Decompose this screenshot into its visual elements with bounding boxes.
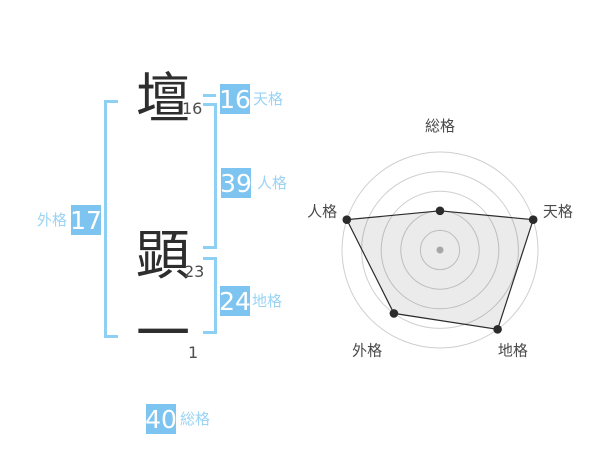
soukaku-score-box: 40: [146, 404, 176, 434]
chikaku-score-label: 地格: [252, 294, 282, 309]
chikaku-score-box: 24: [220, 286, 250, 316]
radar-axis-label-4: 人格: [307, 203, 337, 221]
name-char-3: 一: [134, 307, 192, 361]
radar-polygon: [347, 211, 533, 329]
tenkaku-score-box: 16: [220, 84, 250, 114]
radar-point-1: [529, 215, 538, 224]
gaikaku-bracket: [104, 100, 118, 338]
soukaku-score-label: 総格: [180, 412, 210, 427]
radar-point-0: [436, 207, 445, 216]
radar-axis-label-0: 総格: [425, 117, 455, 135]
radar-point-2: [493, 325, 502, 334]
jinkaku-score-box: 39: [221, 168, 251, 198]
radar-axis-label-1: 天格: [543, 203, 573, 221]
tenkaku-connector-line: [203, 94, 216, 97]
chikaku-bracket: [203, 257, 217, 334]
radar-chart: 総格天格地格外格人格: [300, 80, 600, 380]
stroke-count-1: 16: [182, 101, 202, 117]
stroke-count-3: 1: [188, 345, 198, 361]
tenkaku-score-label: 天格: [253, 92, 283, 107]
radar-axis-label-3: 外格: [352, 341, 382, 359]
gaikaku-score-label: 外格: [30, 213, 67, 228]
stroke-count-2: 23: [184, 264, 204, 280]
jinkaku-bracket: [203, 103, 217, 249]
gaikaku-score-box: 17: [71, 205, 101, 235]
name-fortune-panel: 壇 16 顕 23 一 1 16 天格 39 人格 24 地格 17 外格 40…: [0, 0, 600, 470]
radar-point-3: [390, 309, 399, 318]
jinkaku-score-label: 人格: [257, 176, 287, 191]
radar-point-4: [343, 215, 352, 224]
radar-axis-label-2: 地格: [498, 341, 528, 359]
